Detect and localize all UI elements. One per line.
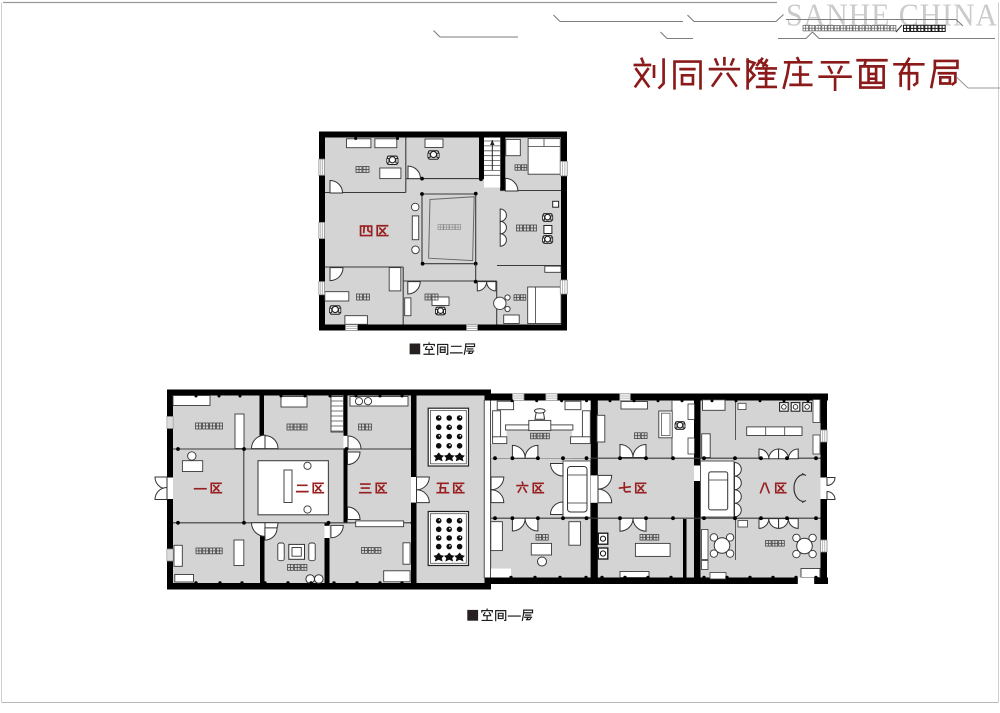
svg-text:SANHE CHINA: SANHE CHINA xyxy=(786,0,998,33)
